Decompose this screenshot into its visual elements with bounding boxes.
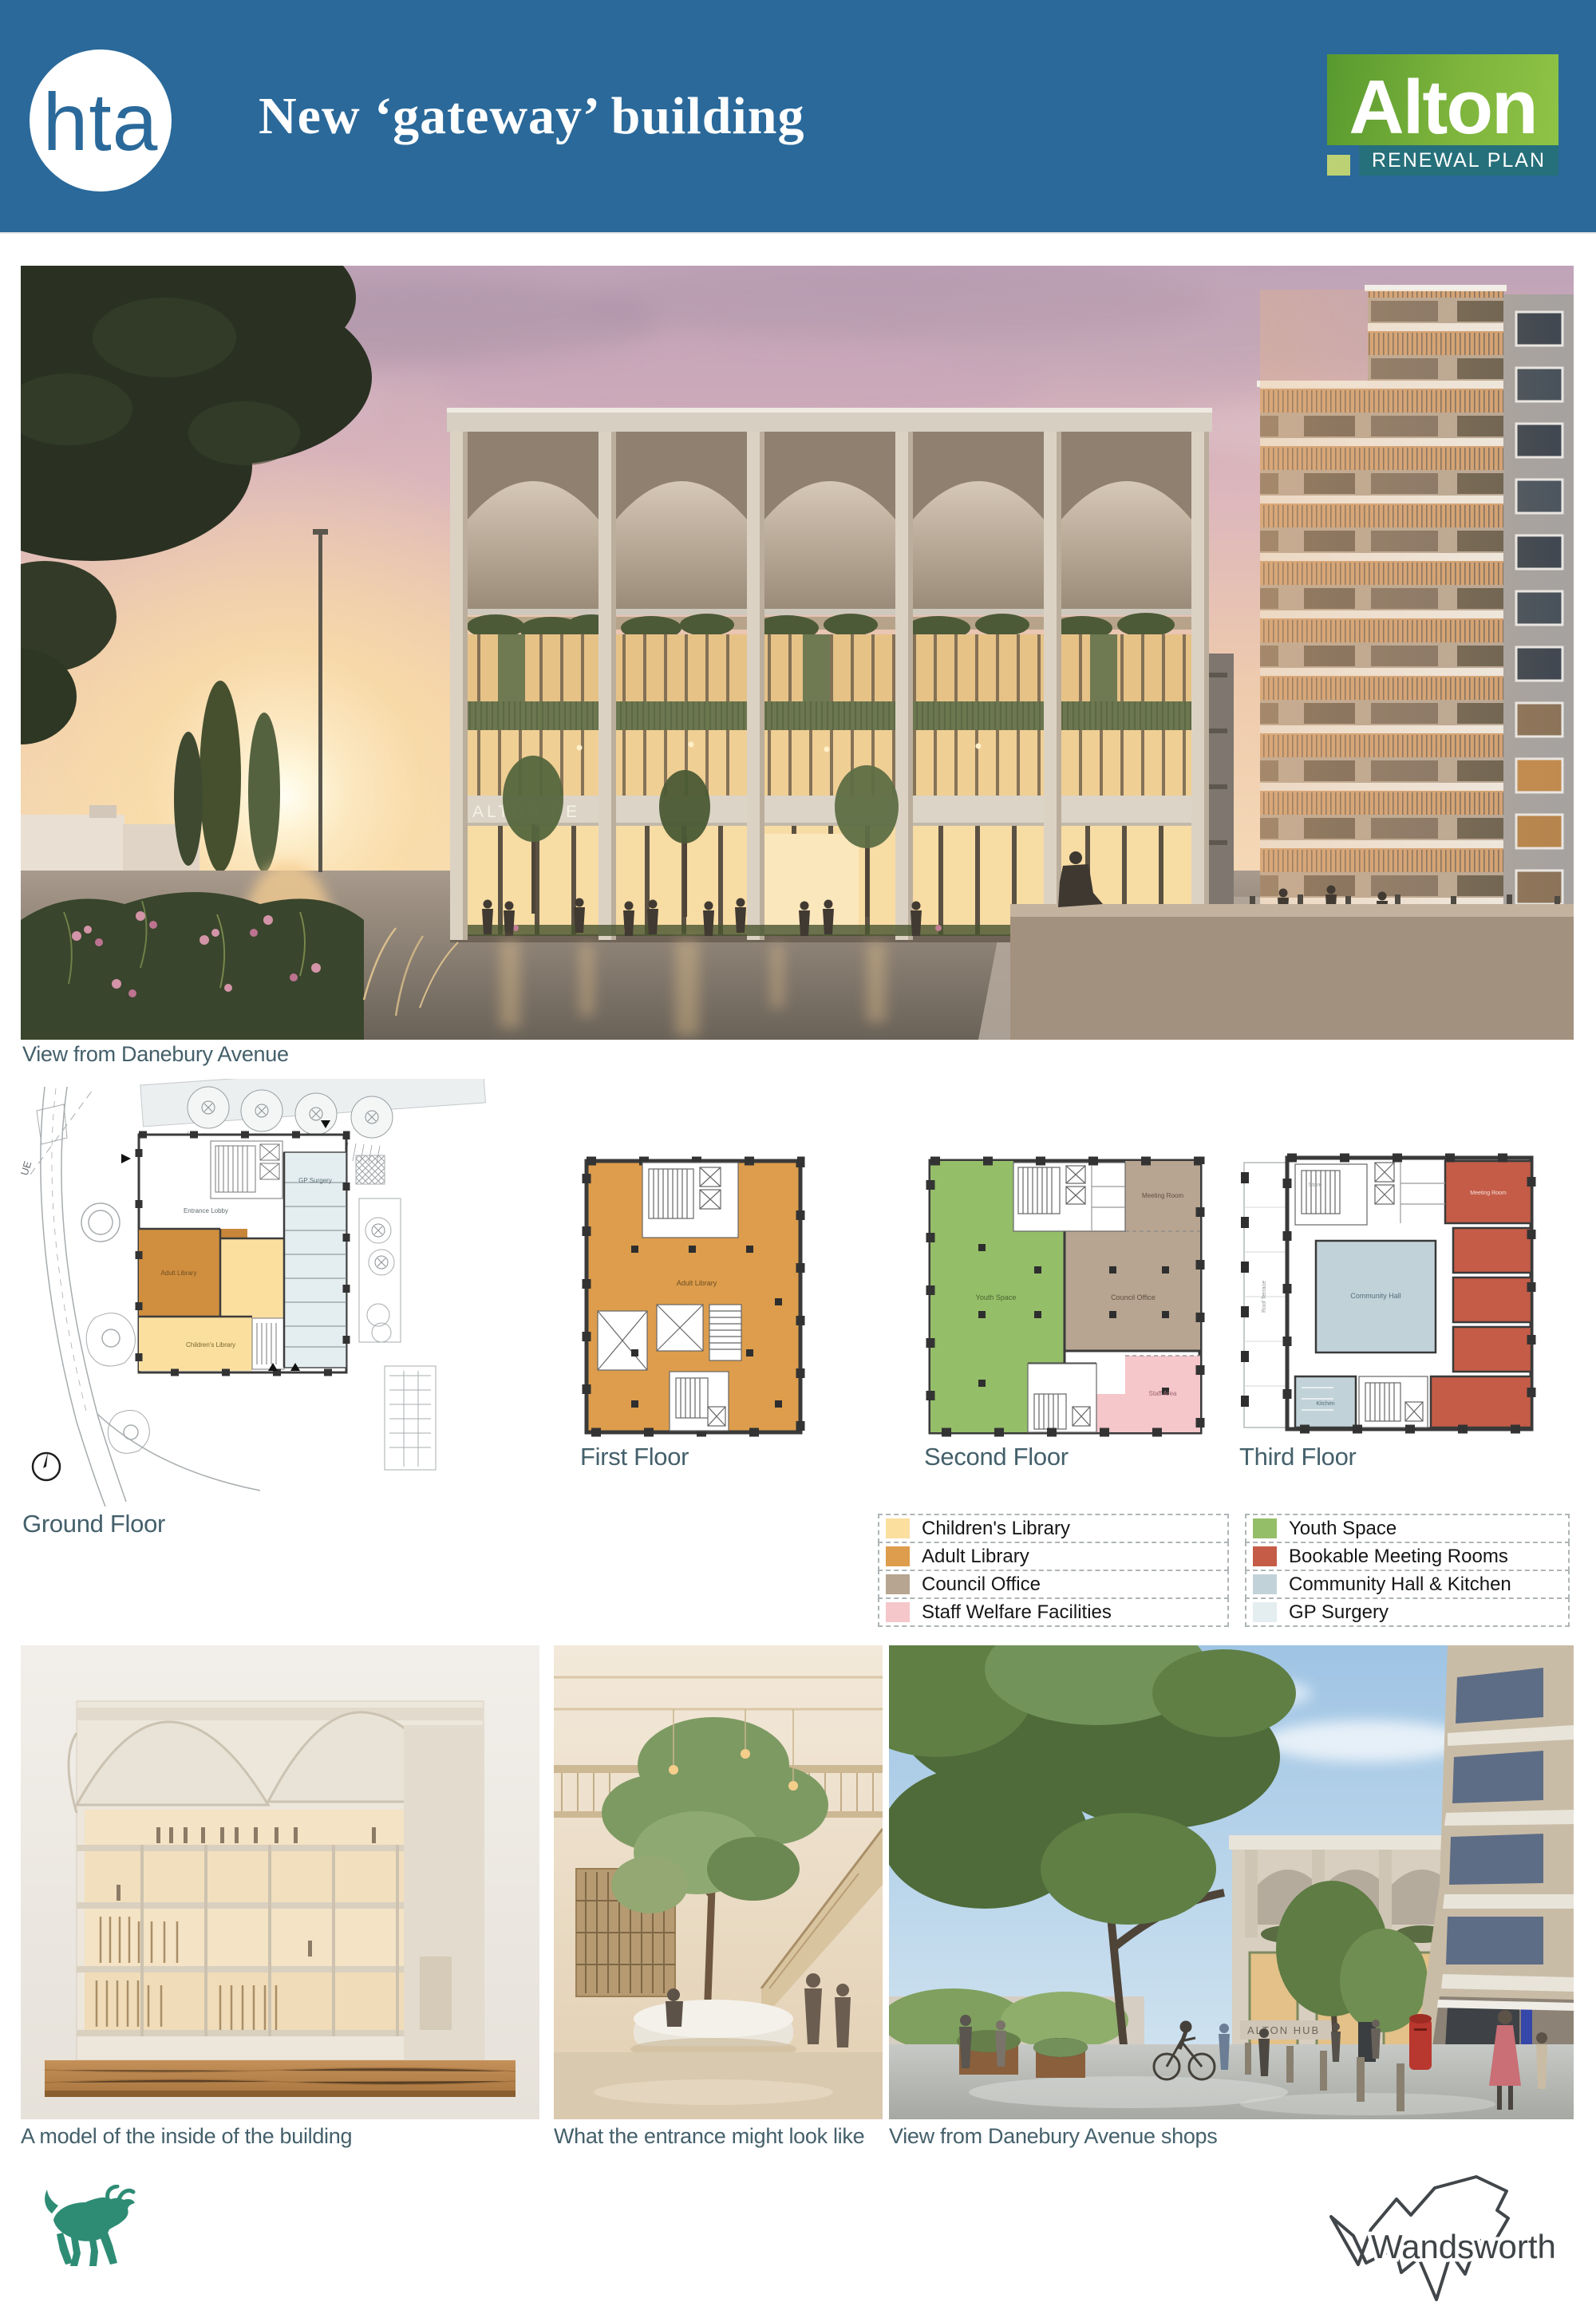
render-residential-tower: [1257, 285, 1574, 942]
wandsworth-logo-text: Wandsworth: [1371, 2228, 1556, 2265]
caption-third-floor: Third Floor: [1239, 1443, 1357, 1471]
caption-main-view: View from Danebury Avenue: [22, 1042, 289, 1067]
legend-right-column: Youth Space Bookable Meeting Rooms Commu…: [1245, 1514, 1570, 1627]
alton-renewal-plan-banner: RENEWAL PLAN: [1359, 145, 1558, 176]
hta-logo-text: hta: [43, 76, 159, 169]
svg-text:Children's Library: Children's Library: [186, 1341, 235, 1349]
north-compass-icon: [33, 1452, 60, 1480]
third-floor-terrace: Roof Terrace: [1241, 1163, 1287, 1427]
alton-renewal-plan-text: RENEWAL PLAN: [1372, 149, 1546, 172]
legend-label: Bookable Meeting Rooms: [1289, 1546, 1508, 1568]
caption-first-floor: First Floor: [580, 1443, 689, 1471]
bull-logo-icon: [36, 2185, 141, 2280]
first-floor-room-label: Adult Library: [677, 1279, 717, 1287]
legend-item: Community Hall & Kitchen: [1245, 1570, 1570, 1599]
legend-swatch: [1253, 1518, 1277, 1538]
site-right-gardens: [356, 1155, 436, 1470]
legend-label: Children's Library: [922, 1518, 1070, 1540]
main-render-image: ALTON HE: [21, 266, 1574, 1040]
legend-item: Council Office: [878, 1570, 1229, 1599]
site-building: Entrance Lobby Adult Library Children's …: [139, 1135, 346, 1372]
caption-ground-floor: Ground Floor: [22, 1510, 165, 1538]
hta-logo: hta: [30, 49, 172, 192]
legend-item: Youth Space: [1245, 1514, 1570, 1543]
legend-label: Council Office: [922, 1574, 1041, 1596]
model-section-image: [21, 1645, 539, 2119]
caption-shops-view: View from Danebury Avenue shops: [889, 2124, 1217, 2149]
legend-swatch: [1253, 1574, 1277, 1594]
legend-swatch: [886, 1546, 910, 1566]
ground-floor-plan: UE: [21, 1079, 535, 1510]
header-bar: hta New ‘gateway’ building Alton RENEWAL…: [0, 0, 1596, 234]
svg-text:GP Surgery: GP Surgery: [298, 1177, 332, 1184]
legend-swatch: [886, 1518, 910, 1538]
svg-text:Kitchen: Kitchen: [1316, 1401, 1334, 1407]
legend-swatch: [886, 1574, 910, 1594]
legend-item: Staff Welfare Facilities: [878, 1597, 1229, 1627]
render-gateway-building: ALTON HE: [447, 408, 1212, 942]
alton-logo-square: [1327, 155, 1350, 176]
svg-text:Entrance Lobby: Entrance Lobby: [184, 1207, 228, 1214]
caption-model: A model of the inside of the building: [21, 2124, 352, 2149]
legend-swatch: [1253, 1546, 1277, 1566]
legend-label: Staff Welfare Facilities: [922, 1601, 1112, 1624]
first-floor-plan: Adult Library: [580, 1155, 807, 1439]
caption-entrance: What the entrance might look like: [554, 2124, 864, 2149]
caption-second-floor: Second Floor: [924, 1443, 1069, 1471]
svg-text:Council Office: Council Office: [1111, 1293, 1156, 1301]
svg-text:Store: Store: [1309, 1183, 1322, 1188]
svg-text:Youth Space: Youth Space: [976, 1293, 1017, 1301]
alton-logo: Alton: [1327, 54, 1558, 145]
page-title: New ‘gateway’ building: [259, 0, 804, 232]
legend-item: Children's Library: [878, 1514, 1229, 1543]
legend-swatch: [1253, 1602, 1277, 1622]
shops-view-image: ALTON HUB: [889, 1645, 1574, 2119]
svg-text:Meeting Room: Meeting Room: [1142, 1192, 1183, 1199]
legend-item: GP Surgery: [1245, 1597, 1570, 1627]
legend-label: Youth Space: [1289, 1518, 1396, 1540]
legend-left-column: Children's Library Adult Library Council…: [878, 1514, 1229, 1627]
legend-label: Community Hall & Kitchen: [1289, 1574, 1511, 1596]
street-pillar-box: [1409, 2014, 1432, 2070]
entrance-interior-image: [554, 1645, 883, 2119]
third-floor-plan: Roof Terrace Community Hall Kitchen Meet…: [1239, 1151, 1536, 1439]
svg-text:Staff Area: Staff Area: [1149, 1390, 1178, 1397]
shops-building-sign: ALTON HUB: [1247, 2024, 1320, 2036]
svg-text:Adult Library: Adult Library: [161, 1270, 197, 1277]
svg-text:Meeting Room: Meeting Room: [1470, 1191, 1507, 1196]
svg-text:Community Hall: Community Hall: [1350, 1292, 1401, 1300]
legend-item: Bookable Meeting Rooms: [1245, 1542, 1570, 1571]
wandsworth-logo: Wandsworth: [1318, 2169, 1574, 2308]
alton-logo-text: Alton: [1349, 70, 1536, 145]
legend-label: Adult Library: [922, 1546, 1029, 1568]
site-road-label: UE: [21, 1159, 34, 1177]
second-floor-plan: Youth Space Council Office Meeting Room …: [924, 1155, 1207, 1439]
legend-swatch: [886, 1602, 910, 1622]
legend-label: GP Surgery: [1289, 1601, 1389, 1624]
svg-text:Roof Terrace: Roof Terrace: [1262, 1281, 1267, 1313]
legend-item: Adult Library: [878, 1542, 1229, 1571]
